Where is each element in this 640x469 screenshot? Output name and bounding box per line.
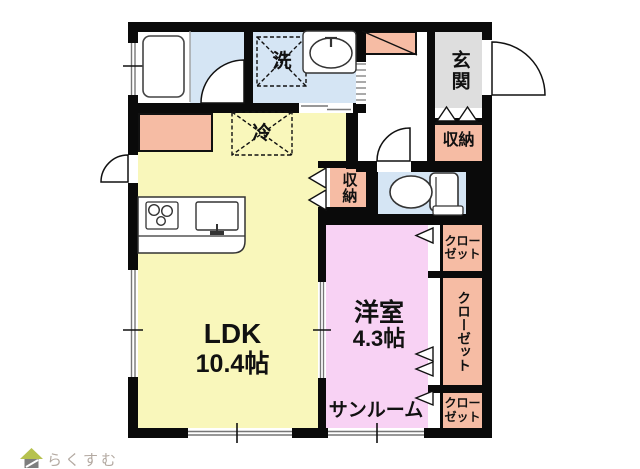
ldk-label: LDK [204,318,262,349]
closet-door-mark [416,228,433,243]
closet-bottom-label: クロー ゼット [443,395,482,426]
kitchen-door-arc [101,155,128,182]
western-room-label-group: 洋室 4.3帖 [328,296,430,354]
window-ldk-left [123,270,143,377]
entrance-storage-bifold-mark [458,107,477,121]
kitchen-door-gap [128,155,138,183]
hall-storage-label: 収納 [333,168,363,207]
sliding-door-washroom [299,103,353,113]
window-bottom-sunroom [328,423,424,443]
refrigerator-label: 冷 [237,118,287,149]
closet-top-label: クロー ゼット [443,228,482,268]
kitchen-sink-icon [196,202,238,235]
bathroom-door-arc [201,60,244,103]
entrance-storage-bifold-mark [437,107,456,121]
vanity-sink-icon [303,31,356,73]
logo-house-icon [20,448,43,468]
entrance-label: 玄関 [446,40,472,102]
toilet-door-gap [377,161,411,172]
toilet-icon [390,173,463,215]
ldk-label-group: LDK 10.4帖 [150,316,315,380]
washing-machine-label: 洗 [261,46,303,77]
kitchen-counter-icon [138,197,245,253]
shoe-cabinet-diagonal [362,31,417,55]
bathtub-icon [143,36,184,97]
entry-door-gap [482,40,492,95]
accordion-door-washroom-hall [356,62,366,104]
closet-middle-label: クローゼット [443,282,482,381]
ldk-size: 10.4帖 [196,350,270,378]
hall-storage-bifold-mark [309,168,326,188]
stove-icon [146,202,178,229]
western-room-label: 洋室 [354,299,404,327]
window-bottom-ldk [188,423,292,443]
hall-storage-bifold-mark [309,190,326,210]
window-bathroom-left [123,43,143,95]
toilet-door-arc [377,128,410,161]
floorplan-page: LDK 10.4帖 洋室 4.3帖 サンルーム 玄関 収納 収納 クロー ゼット… [0,0,640,469]
entry-door-arc [492,42,545,95]
floorplan-drawing [0,0,640,469]
closet-door-mark [416,362,433,376]
logo-text: らくすむ [47,450,137,468]
sunroom-label: サンルーム [324,399,428,423]
entrance-storage-label: 収納 [435,127,482,155]
western-room-size: 4.3帖 [353,327,406,352]
